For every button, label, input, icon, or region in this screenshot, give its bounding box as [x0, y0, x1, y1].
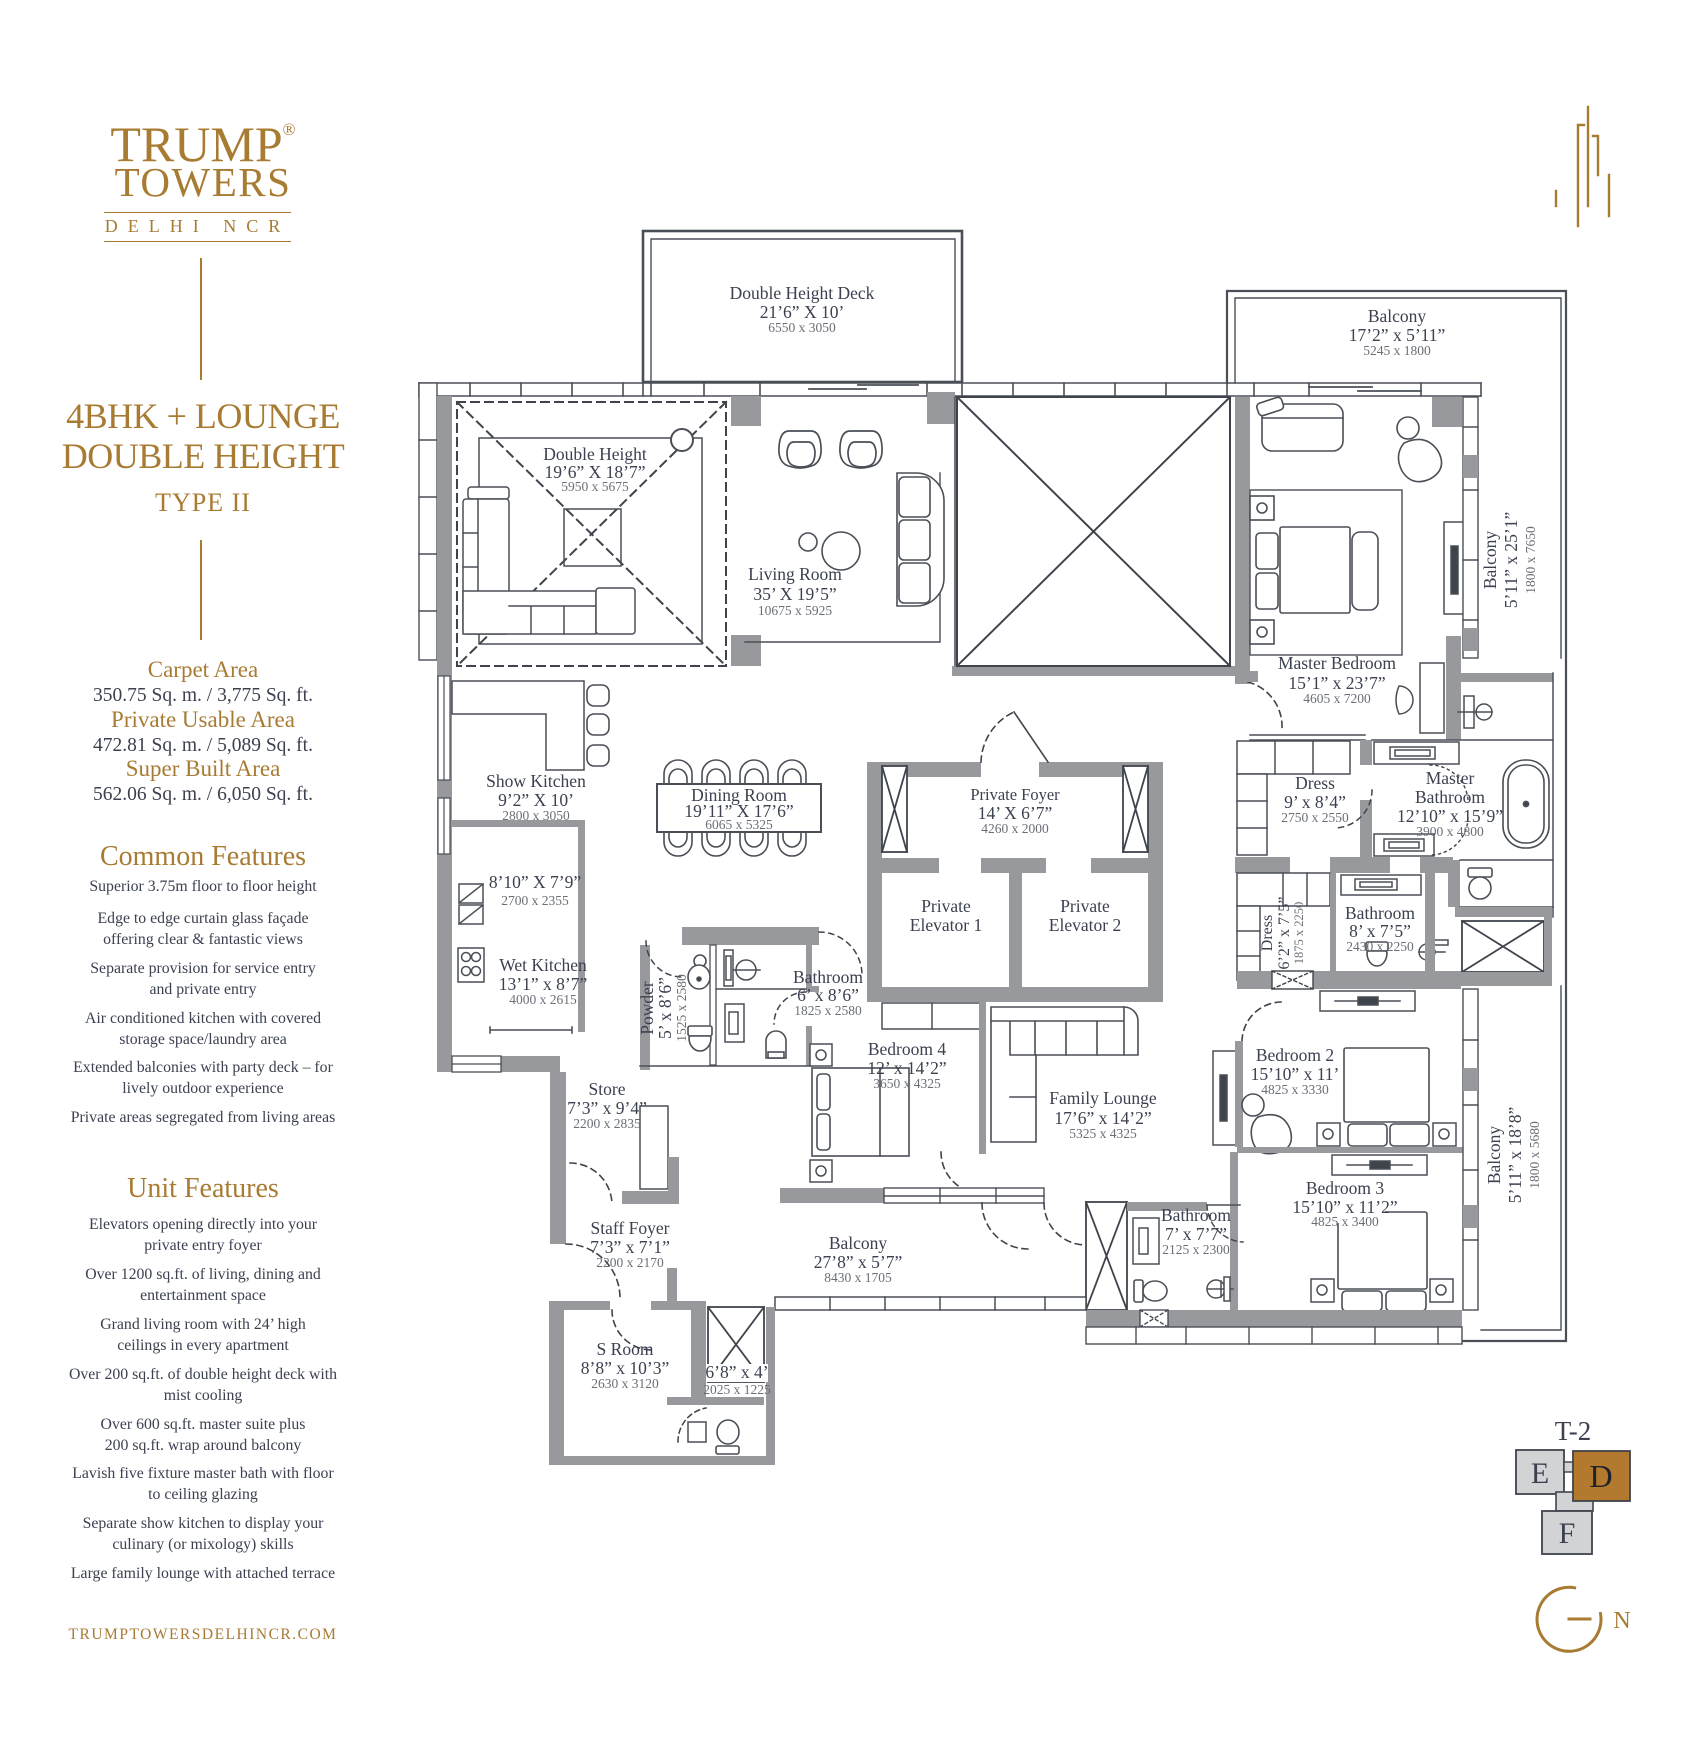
- svg-text:Family Lounge: Family Lounge: [1049, 1088, 1157, 1108]
- svg-text:1825 x 2580: 1825 x 2580: [794, 1003, 862, 1018]
- svg-text:4825 x 3400: 4825 x 3400: [1311, 1214, 1379, 1229]
- svg-text:2125 x 2300: 2125 x 2300: [1162, 1242, 1230, 1257]
- svg-text:N: N: [1613, 1608, 1630, 1634]
- svg-text:2025 x 1225: 2025 x 1225: [703, 1382, 771, 1397]
- svg-text:8’10” X 7’9”: 8’10” X 7’9”: [489, 872, 581, 892]
- svg-text:Double Height Deck: Double Height Deck: [730, 283, 875, 303]
- svg-text:7’3” x 9’4”: 7’3” x 9’4”: [567, 1098, 647, 1118]
- svg-text:D: D: [1589, 1458, 1612, 1494]
- svg-text:5245 x 1800: 5245 x 1800: [1363, 343, 1431, 358]
- svg-text:Dress: Dress: [1295, 773, 1335, 793]
- svg-text:5’11” x 18’8”: 5’11” x 18’8”: [1505, 1107, 1525, 1204]
- svg-text:Private Foyer: Private Foyer: [970, 785, 1060, 804]
- svg-text:Bathroom: Bathroom: [793, 967, 863, 987]
- svg-text:Powder: Powder: [637, 981, 657, 1035]
- svg-text:2750 x 2550: 2750 x 2550: [1281, 810, 1349, 825]
- svg-text:27’8” x 5’7”: 27’8” x 5’7”: [814, 1252, 902, 1272]
- svg-text:Bedroom 4: Bedroom 4: [868, 1039, 947, 1059]
- svg-text:Double Height: Double Height: [543, 444, 647, 464]
- svg-text:T-2: T-2: [1555, 1416, 1592, 1446]
- svg-text:Balcony: Balcony: [1484, 1126, 1504, 1185]
- svg-text:Master: Master: [1426, 768, 1475, 788]
- svg-text:Bathroom: Bathroom: [1415, 787, 1485, 807]
- svg-text:17’6” x 14’2”: 17’6” x 14’2”: [1054, 1108, 1151, 1128]
- svg-text:13’1” x 8’7”: 13’1” x 8’7”: [499, 974, 587, 994]
- svg-text:15’10” x 11’: 15’10” x 11’: [1251, 1064, 1340, 1084]
- svg-text:4000 x 2615: 4000 x 2615: [509, 992, 577, 1007]
- svg-text:8430 x 1705: 8430 x 1705: [824, 1270, 892, 1285]
- svg-text:7’ x 7’7”: 7’ x 7’7”: [1165, 1224, 1227, 1244]
- svg-text:Bedroom 3: Bedroom 3: [1306, 1178, 1385, 1198]
- svg-text:Wet Kitchen: Wet Kitchen: [499, 955, 587, 975]
- svg-text:5’ x 8’6”: 5’ x 8’6”: [655, 977, 675, 1039]
- svg-text:6’ x 8’6”: 6’ x 8’6”: [797, 985, 859, 1005]
- svg-text:8’ x 7’5”: 8’ x 7’5”: [1349, 921, 1411, 941]
- svg-text:35’ X 19’5”: 35’ X 19’5”: [753, 584, 836, 604]
- svg-text:1800 x 5680: 1800 x 5680: [1527, 1121, 1542, 1189]
- svg-text:2200 x 2835: 2200 x 2835: [573, 1116, 641, 1131]
- svg-text:Bathroom: Bathroom: [1161, 1205, 1231, 1225]
- svg-text:Elevator 2: Elevator 2: [1049, 915, 1121, 935]
- svg-text:Show Kitchen: Show Kitchen: [486, 771, 586, 791]
- svg-text:12’ x 14’2”: 12’ x 14’2”: [867, 1058, 946, 1078]
- svg-text:15’1” x 23’7”: 15’1” x 23’7”: [1288, 673, 1385, 693]
- svg-text:12’10” x 15’9”: 12’10” x 15’9”: [1397, 806, 1503, 826]
- svg-text:Balcony: Balcony: [829, 1233, 888, 1253]
- svg-text:F: F: [1559, 1517, 1576, 1550]
- svg-text:5325 x 4325: 5325 x 4325: [1069, 1126, 1137, 1141]
- svg-text:Bedroom 2: Bedroom 2: [1256, 1045, 1334, 1065]
- svg-text:4605 x 7200: 4605 x 7200: [1303, 691, 1371, 706]
- svg-text:E: E: [1531, 1457, 1549, 1490]
- svg-text:2630 x 3120: 2630 x 3120: [591, 1376, 659, 1391]
- svg-text:Private: Private: [1060, 896, 1110, 916]
- svg-text:Balcony: Balcony: [1480, 531, 1500, 590]
- svg-text:9’2” X 10’: 9’2” X 10’: [498, 790, 574, 810]
- svg-text:9’ x 8’4”: 9’ x 8’4”: [1284, 792, 1346, 812]
- svg-text:3650 x 4325: 3650 x 4325: [873, 1076, 941, 1091]
- svg-text:6065 x 5325: 6065 x 5325: [705, 817, 773, 832]
- svg-text:Master Bedroom: Master Bedroom: [1278, 653, 1396, 673]
- svg-text:6’8” x 4’: 6’8” x 4’: [705, 1362, 768, 1382]
- svg-text:21’6” X 10’: 21’6” X 10’: [760, 302, 845, 322]
- svg-text:Private: Private: [921, 896, 971, 916]
- svg-text:1800 x 7650: 1800 x 7650: [1523, 526, 1538, 594]
- svg-text:3900 x 4800: 3900 x 4800: [1416, 824, 1484, 839]
- svg-text:Elevator 1: Elevator 1: [910, 915, 982, 935]
- svg-text:5’11” x 25’1”: 5’11” x 25’1”: [1501, 512, 1521, 609]
- svg-text:6’2” x 7’5”: 6’2” x 7’5”: [1276, 897, 1293, 970]
- svg-text:1875 x 2250: 1875 x 2250: [1292, 902, 1306, 965]
- svg-text:Store: Store: [589, 1079, 626, 1099]
- svg-text:2430 x 2250: 2430 x 2250: [1346, 939, 1414, 954]
- svg-text:17’2” x 5’11”: 17’2” x 5’11”: [1349, 325, 1446, 345]
- svg-text:Bathroom: Bathroom: [1345, 903, 1415, 923]
- svg-text:Living Room: Living Room: [748, 564, 842, 584]
- svg-text:Staff Foyer: Staff Foyer: [591, 1218, 670, 1238]
- svg-text:4825 x 3330: 4825 x 3330: [1261, 1082, 1329, 1097]
- svg-text:Balcony: Balcony: [1368, 306, 1427, 326]
- svg-text:4260 x 2000: 4260 x 2000: [981, 821, 1049, 836]
- svg-text:S Room: S Room: [597, 1339, 654, 1359]
- svg-text:14’ X 6’7”: 14’ X 6’7”: [978, 803, 1053, 823]
- svg-text:2700 x 2355: 2700 x 2355: [501, 893, 569, 908]
- svg-text:5950 x 5675: 5950 x 5675: [561, 479, 629, 494]
- svg-text:Dress: Dress: [1259, 915, 1276, 951]
- svg-text:8’8” x 10’3”: 8’8” x 10’3”: [581, 1358, 669, 1378]
- svg-text:10675 x 5925: 10675 x 5925: [758, 603, 833, 618]
- svg-text:7’3” x 7’1”: 7’3” x 7’1”: [590, 1237, 670, 1257]
- svg-text:6550 x 3050: 6550 x 3050: [768, 320, 836, 335]
- svg-text:1525 x 2580: 1525 x 2580: [674, 974, 689, 1042]
